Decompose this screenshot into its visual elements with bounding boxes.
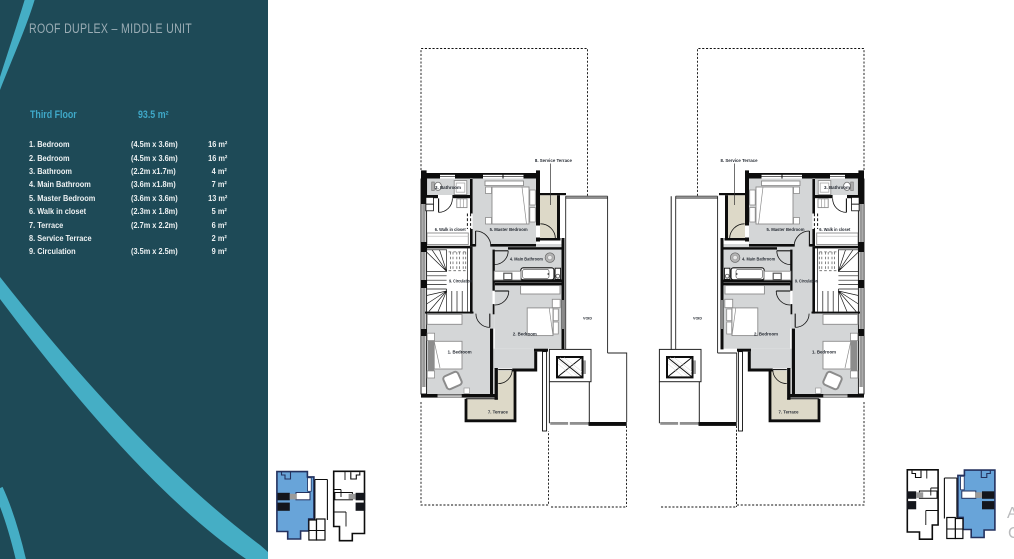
svg-text:A: A — [1007, 505, 1014, 522]
svg-text:3. Bathroom: 3. Bathroom — [435, 185, 461, 190]
svg-text:2. Bedroom: 2. Bedroom — [754, 331, 778, 336]
svg-text:9. Circulation: 9. Circulation — [795, 279, 818, 284]
svg-text:4. Main Bathroom: 4. Main Bathroom — [510, 257, 543, 262]
svg-text:7. Terrace: 7. Terrace — [779, 409, 800, 414]
svg-text:6. Walk in closet: 6. Walk in closet — [819, 227, 851, 232]
svg-text:8. Service Terrace: 8. Service Terrace — [535, 158, 573, 163]
svg-text:5. Master Bedroom: 5. Master Bedroom — [490, 227, 528, 232]
svg-text:6. Walk in closet: 6. Walk in closet — [435, 227, 467, 232]
svg-text:9. Circulation: 9. Circulation — [449, 279, 472, 284]
svg-text:4. Main Bathroom: 4. Main Bathroom — [742, 257, 775, 262]
svg-text:1. Bedroom: 1. Bedroom — [448, 350, 472, 355]
svg-text:5. Master Bedroom: 5. Master Bedroom — [767, 227, 805, 232]
svg-text:C: C — [1008, 525, 1014, 542]
svg-text:1. Bedroom: 1. Bedroom — [812, 350, 836, 355]
svg-text:VOID: VOID — [693, 317, 702, 321]
svg-text:VOID: VOID — [583, 317, 592, 321]
svg-text:8. Service Terrace: 8. Service Terrace — [721, 158, 759, 163]
svg-text:7. Terrace: 7. Terrace — [488, 409, 509, 414]
svg-text:2. Bedroom: 2. Bedroom — [513, 331, 537, 336]
svg-text:3. Bathroom: 3. Bathroom — [824, 185, 850, 190]
